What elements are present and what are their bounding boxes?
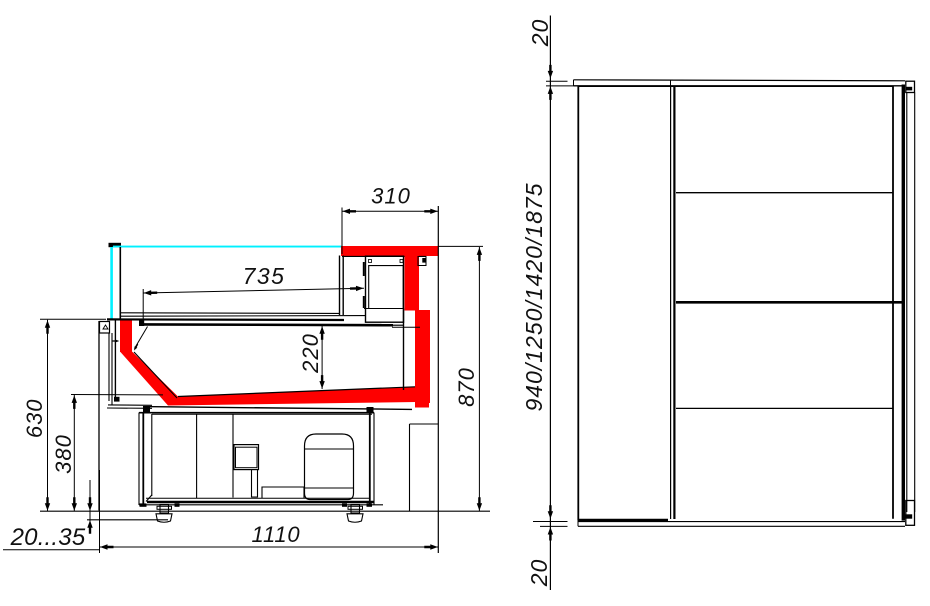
- svg-text:220: 220: [298, 333, 323, 374]
- svg-text:310: 310: [371, 184, 411, 209]
- svg-text:380: 380: [51, 434, 76, 474]
- svg-text:630: 630: [22, 398, 47, 438]
- svg-text:20: 20: [526, 559, 552, 588]
- svg-text:20...35: 20...35: [10, 524, 86, 551]
- svg-text:870: 870: [454, 367, 479, 407]
- svg-text:735: 735: [243, 263, 286, 289]
- svg-text:940/1250/1420/1875: 940/1250/1420/1875: [521, 182, 547, 411]
- svg-text:20: 20: [527, 19, 553, 48]
- svg-text:1110: 1110: [252, 522, 301, 547]
